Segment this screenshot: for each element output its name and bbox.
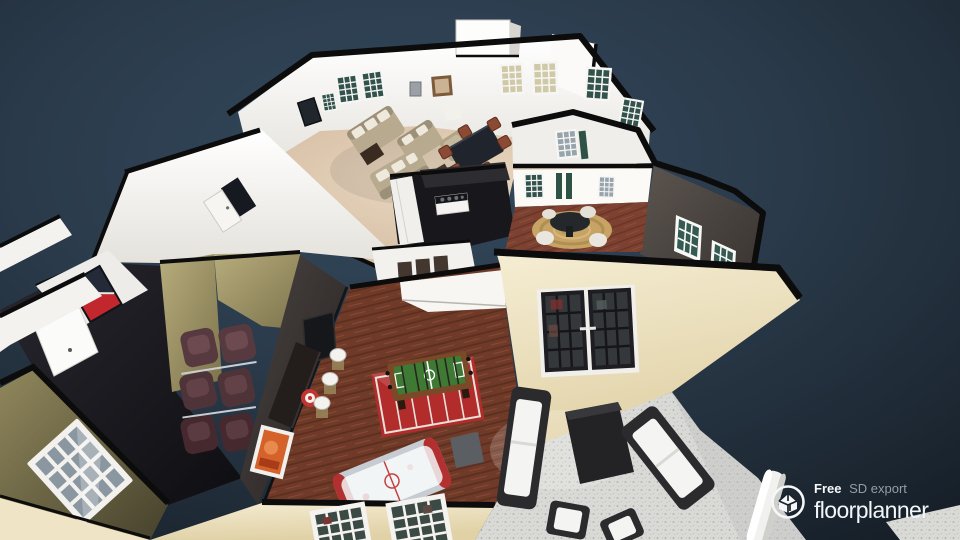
wicker-chair — [542, 209, 556, 219]
stove — [435, 193, 469, 215]
white-armchair — [443, 101, 462, 122]
floorplanner-logo-icon — [768, 482, 808, 522]
watermark-free-label: Free — [814, 481, 841, 496]
shutter — [566, 173, 572, 199]
shutter — [556, 173, 562, 199]
floorplanner-3d-export-view: Free SD export floorplanner — [0, 0, 960, 540]
watermark-brand: floorplanner — [814, 498, 928, 522]
wicker-chair — [536, 231, 554, 245]
floor-mat — [450, 432, 484, 468]
french-doors[interactable] — [537, 284, 639, 377]
watermark-plan-label: SD export — [849, 481, 907, 496]
watermark: Free SD export floorplanner — [768, 482, 928, 522]
scene-canvas[interactable] — [0, 0, 960, 540]
outdoor-chair — [545, 500, 590, 540]
wicker-chair — [589, 233, 607, 247]
wicker-chair — [580, 206, 596, 218]
watermark-text: Free SD export floorplanner — [814, 482, 928, 522]
